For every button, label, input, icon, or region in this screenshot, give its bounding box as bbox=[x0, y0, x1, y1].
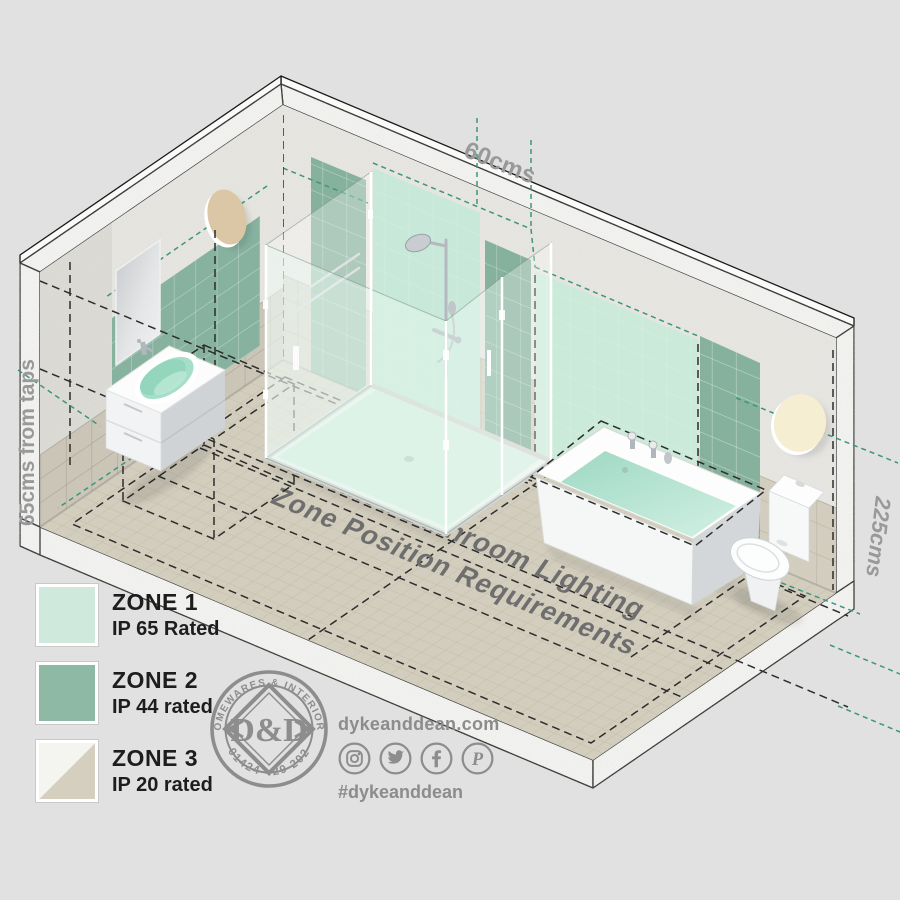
svg-text:P: P bbox=[471, 749, 484, 769]
zone2-swatch bbox=[36, 662, 98, 724]
facebook-icon bbox=[420, 742, 453, 775]
zone3-label: ZONE 3 bbox=[112, 745, 213, 772]
zone2-label: ZONE 2 bbox=[112, 667, 213, 694]
zone1-swatch bbox=[36, 584, 98, 646]
svg-text:65cms from taps: 65cms from taps bbox=[16, 359, 39, 526]
social-icons-row: P bbox=[338, 742, 500, 775]
zone1-label: ZONE 1 bbox=[112, 589, 219, 616]
hashtag-text: #dykeanddean bbox=[338, 782, 500, 803]
zone1-rating: IP 65 Rated bbox=[112, 618, 219, 641]
website-text: dykeanddean.com bbox=[338, 714, 500, 735]
badge-monogram: D&D bbox=[230, 712, 307, 749]
zone2-rating: IP 44 rated bbox=[112, 696, 213, 719]
zone3-swatch bbox=[36, 740, 98, 802]
pinterest-icon: P bbox=[461, 742, 494, 775]
zone3-rating: IP 20 rated bbox=[112, 774, 213, 797]
bathroom-zones-infographic: IP Rated Bathroom Lighting Zone Position… bbox=[0, 0, 900, 900]
brand-links: dykeanddean.com P #dykeanddean bbox=[338, 714, 500, 803]
dyke-and-dean-badge: HOMEWARES & INTERIORS 01424 429 202 D&D bbox=[208, 668, 330, 790]
svg-text:225cms: 225cms bbox=[861, 494, 896, 578]
twitter-icon bbox=[379, 742, 412, 775]
legend-row-zone1: ZONE 1 IP 65 Rated bbox=[36, 584, 306, 646]
instagram-icon bbox=[338, 742, 371, 775]
